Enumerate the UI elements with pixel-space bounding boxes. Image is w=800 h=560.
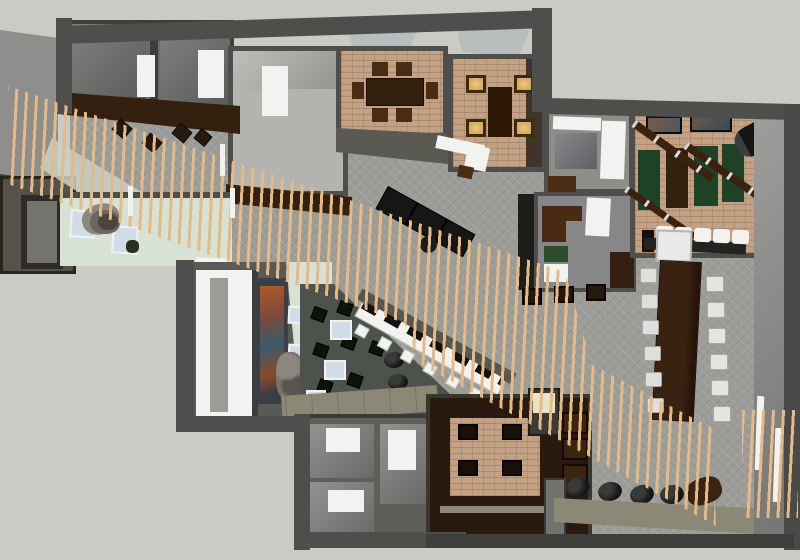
rug-seat — [458, 424, 478, 440]
bar-stool-white — [354, 323, 370, 338]
credenza — [655, 229, 692, 262]
dining-room-b — [448, 54, 545, 172]
dining-chair — [372, 108, 388, 122]
conference-chair — [713, 406, 731, 422]
bar-stool — [713, 229, 730, 244]
dining-table-b — [488, 87, 512, 137]
storage-rooms — [296, 414, 436, 546]
office-desk — [553, 116, 601, 131]
canopy-post — [220, 144, 225, 176]
window-pane — [27, 201, 57, 263]
booth-seat-lit — [466, 75, 486, 93]
office-desk — [600, 121, 626, 180]
conference-chair — [645, 372, 662, 387]
booth-seat-lit — [514, 119, 534, 137]
dining-table-a — [366, 78, 424, 106]
conference-chair — [706, 276, 724, 292]
floor-plan-render — [0, 0, 800, 560]
phone-room-door — [137, 55, 155, 97]
office-step — [555, 133, 597, 169]
corridor-west-wall — [176, 260, 194, 432]
bar-stool — [732, 230, 749, 245]
bar-stool-white — [377, 336, 393, 351]
conference-chair — [642, 320, 659, 335]
wood-slat-canopy-east — [742, 410, 798, 518]
side-stool — [586, 284, 606, 301]
southwest-wall — [294, 414, 310, 550]
conference-chair — [711, 380, 729, 396]
storage-whiteboard — [388, 430, 416, 470]
nook-table — [585, 197, 611, 236]
dining-chair — [396, 62, 412, 76]
northeast-step-wall — [532, 8, 552, 112]
corridor-stair — [210, 278, 228, 412]
conference-chair — [708, 328, 726, 344]
plant — [126, 240, 139, 253]
storage-whiteboard — [326, 428, 360, 452]
conference-chair — [707, 302, 725, 318]
lounge-table — [324, 360, 346, 380]
booth-seat-lit — [514, 75, 534, 93]
corridor-south-wall — [176, 416, 308, 432]
dining-chair — [372, 62, 388, 76]
dining-chair — [396, 108, 412, 122]
booth-seat-lit — [466, 119, 486, 137]
stone-column — [276, 352, 304, 400]
conference-chair — [641, 294, 658, 309]
dining-chair — [352, 82, 364, 99]
conference-chair — [710, 354, 728, 370]
office-side-desk — [548, 176, 576, 193]
south-wall-right — [426, 534, 794, 548]
dining-room-a — [336, 46, 448, 138]
dining-chair — [426, 82, 438, 99]
rug-seat — [502, 424, 522, 440]
reception-door — [262, 66, 288, 116]
conference-chair — [640, 268, 657, 283]
rug-seat — [458, 460, 478, 476]
nook-sofa — [542, 210, 566, 242]
northwest-wall — [56, 18, 72, 114]
bar-stool — [694, 228, 711, 243]
canopy-post — [230, 188, 235, 218]
reception-wall-face — [233, 51, 343, 89]
conference-chair — [644, 346, 661, 361]
rug-seat — [502, 460, 522, 476]
storage-whiteboard — [328, 490, 364, 512]
nook-seat-green — [544, 246, 568, 262]
phone-room-door — [198, 50, 224, 98]
bar-stool-white — [399, 349, 415, 364]
canopy-post — [128, 186, 133, 216]
